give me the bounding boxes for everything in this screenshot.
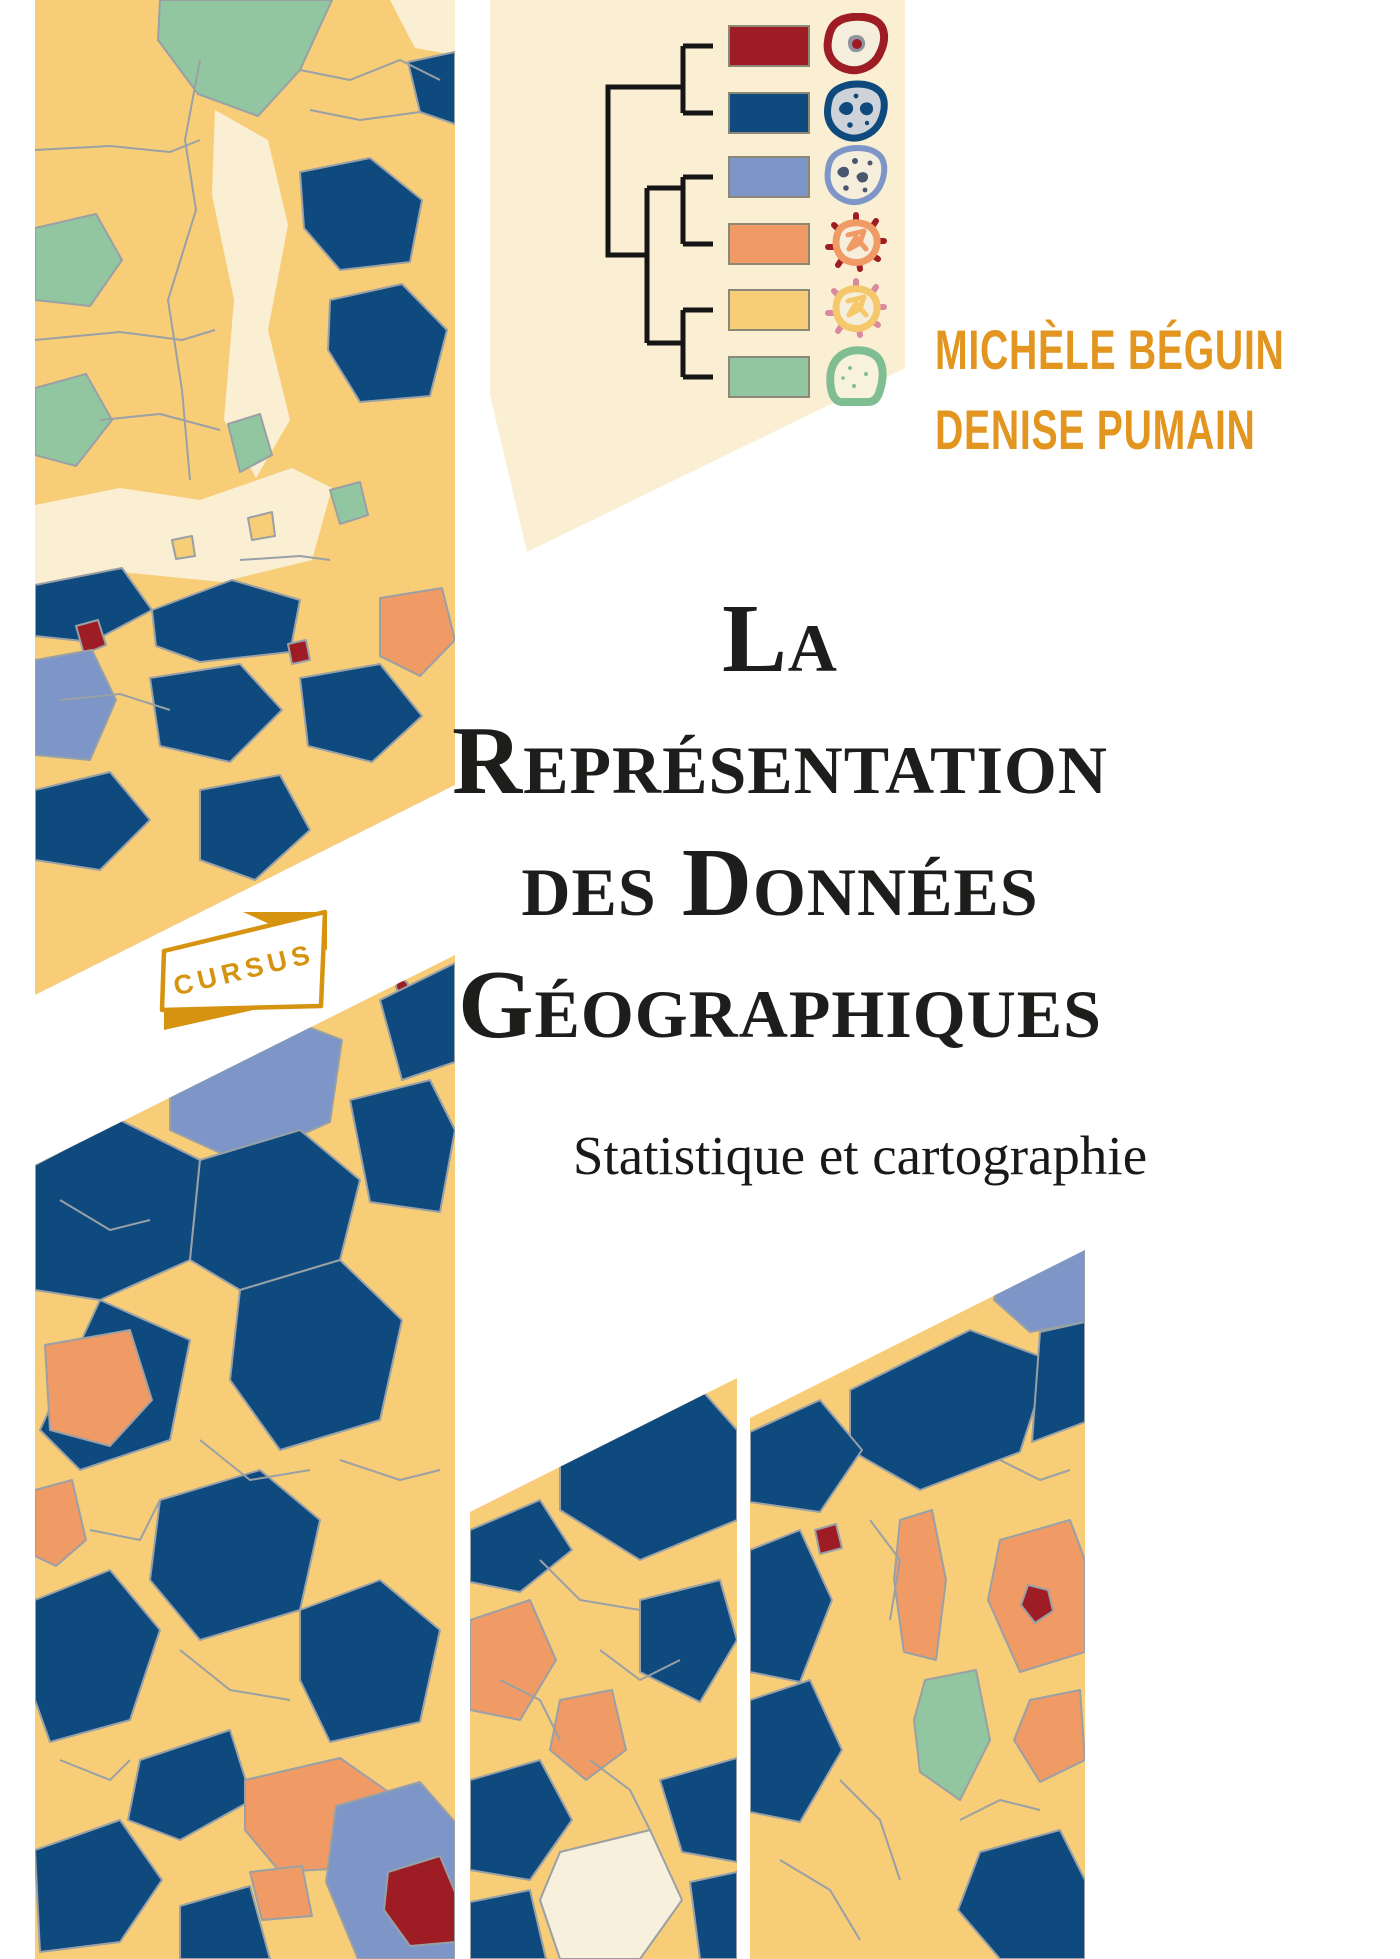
title-line-4: Géographiques — [430, 944, 1130, 1066]
legend-swatch-green — [728, 356, 810, 398]
author-names: MICHÈLE BÉGUIN DENISE PUMAIN — [935, 310, 1355, 470]
book-cover: { "book_cover": { "authors": ["MICHÈLE B… — [0, 0, 1400, 1959]
title-line-3: des Données — [430, 822, 1130, 944]
book-subtitle: Statistique et cartographie — [540, 1124, 1180, 1187]
legend-swatch-dark-red — [728, 25, 810, 67]
classification-dendrogram — [595, 18, 725, 393]
scattered-spots-blob-icon — [822, 144, 890, 208]
radiating-core-blob-icon — [822, 211, 890, 275]
map-panel-bottom-middle — [470, 1378, 737, 1959]
core-city-blob-icon — [822, 13, 890, 77]
author-1: MICHÈLE BÉGUIN — [935, 310, 1229, 390]
legend-swatch-periwinkle — [728, 156, 810, 198]
legend-swatch-yellow — [728, 289, 810, 331]
sparse-blob-icon — [822, 344, 890, 408]
title-line-2: Représentation — [430, 700, 1130, 822]
legend-swatch-dark-blue — [728, 92, 810, 134]
book-title: La Représentation des Données Géographiq… — [430, 578, 1130, 1066]
author-2: DENISE PUMAIN — [935, 390, 1229, 470]
title-line-1: La — [430, 578, 1130, 700]
map-panel-top-left — [35, 0, 455, 995]
dense-patches-blob-icon — [822, 80, 890, 144]
map-panel-bottom-left — [35, 955, 455, 1959]
radiating-light-blob-icon — [822, 277, 890, 341]
map-panel-bottom-right — [750, 1245, 1085, 1959]
legend-swatch-salmon — [728, 223, 810, 265]
